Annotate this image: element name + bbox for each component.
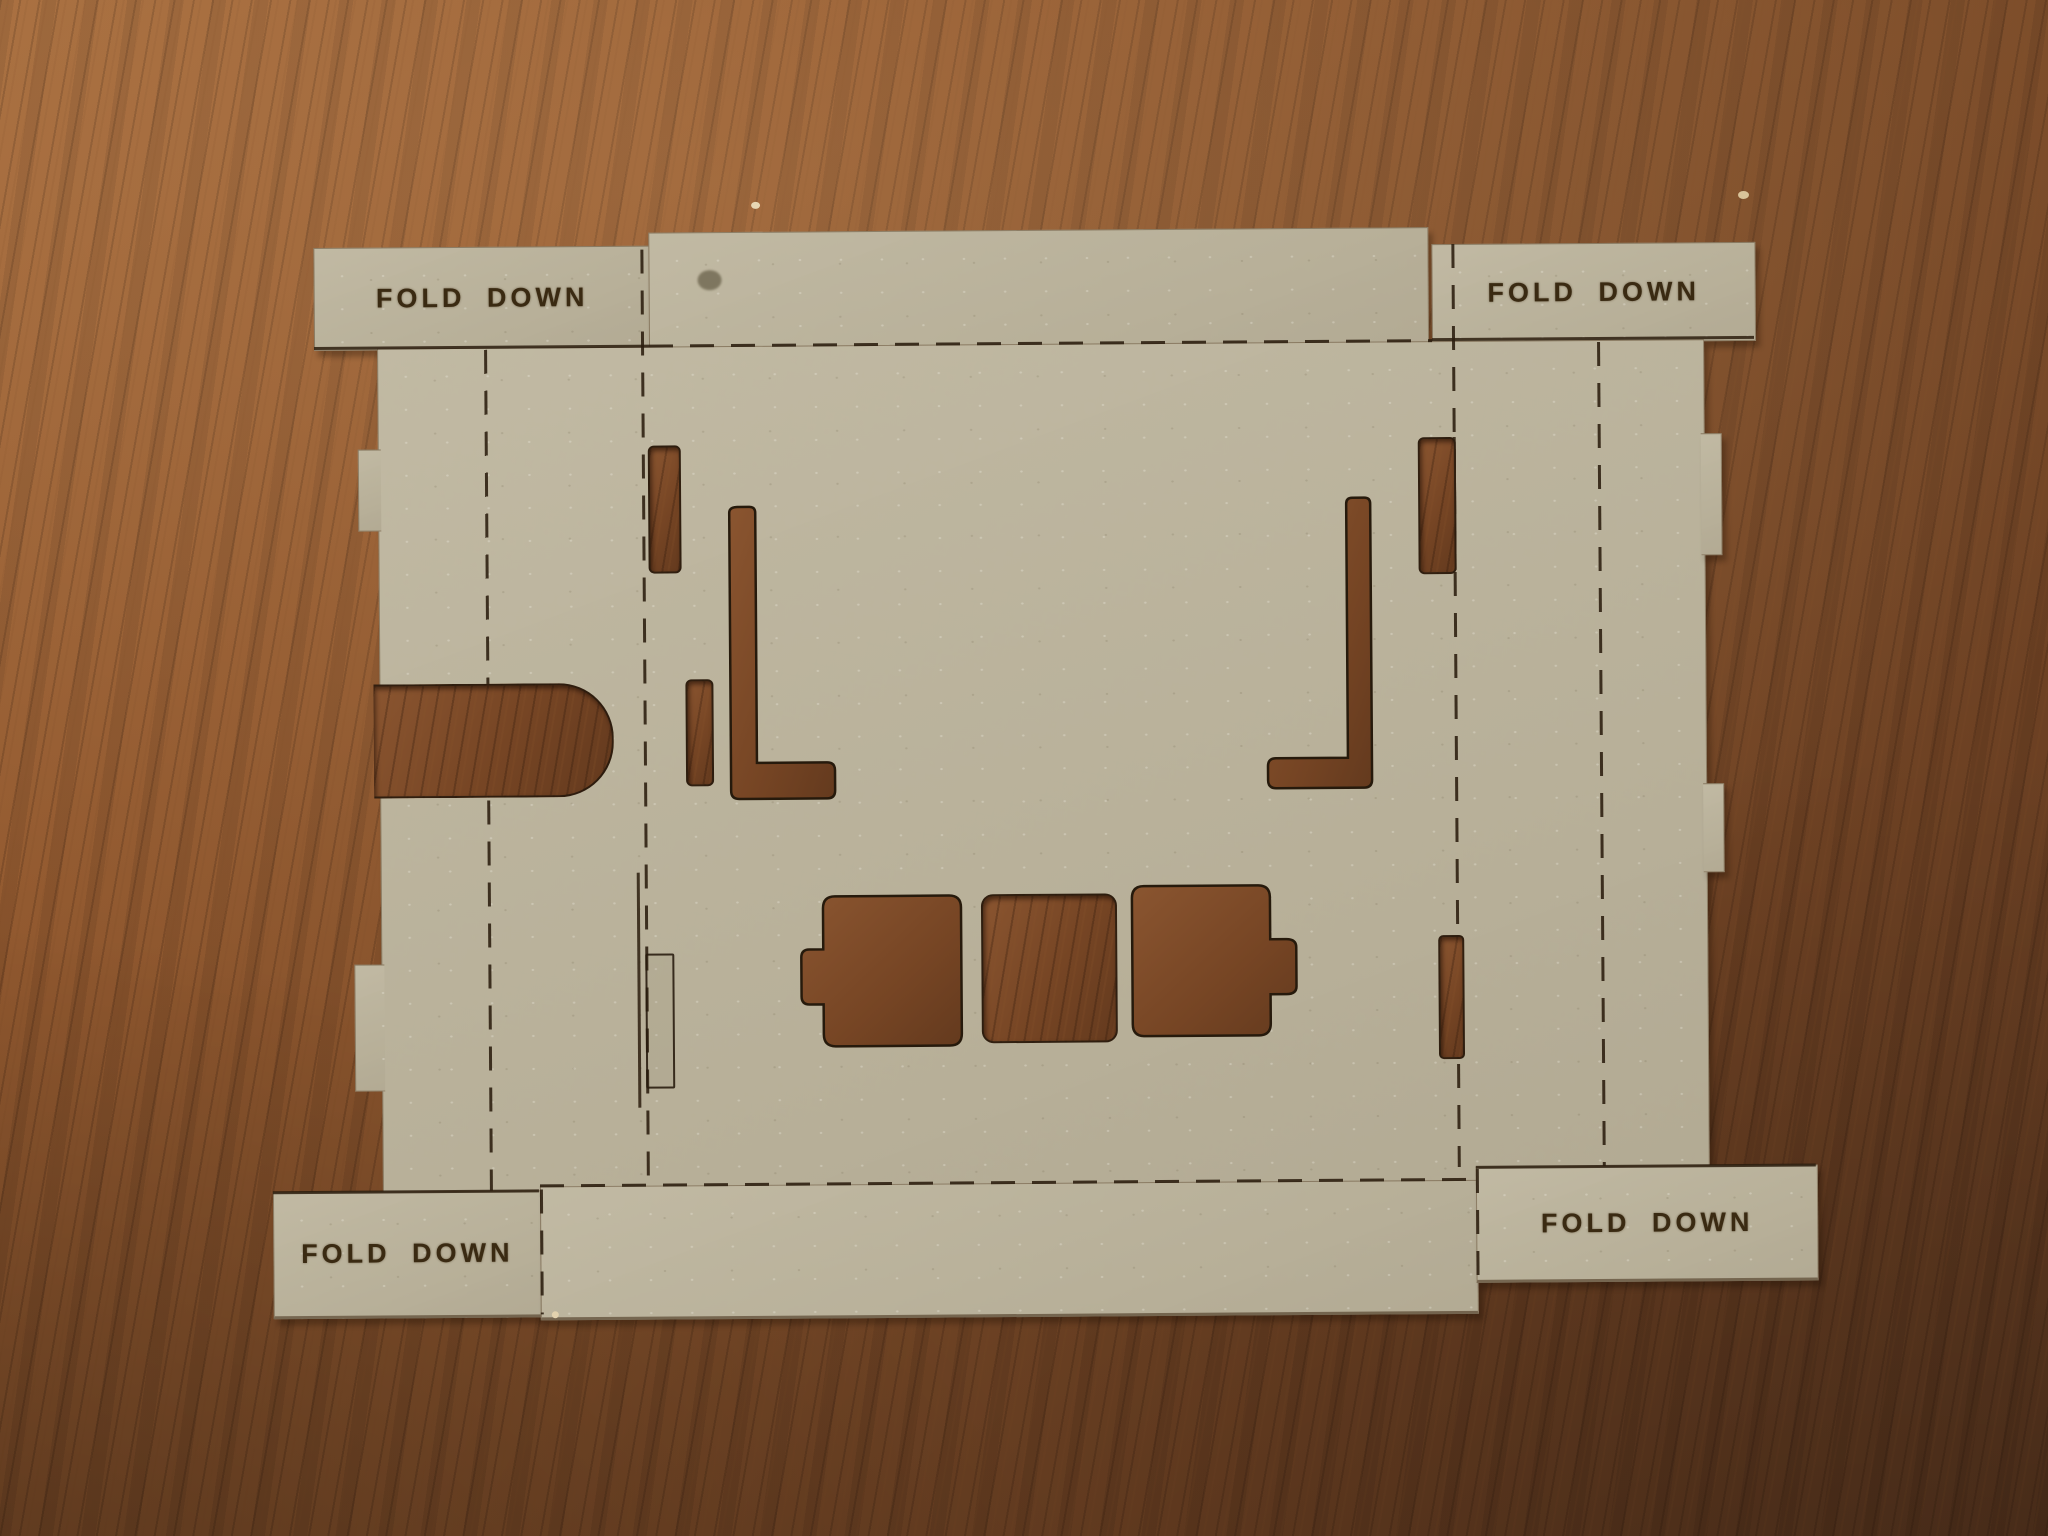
fold-flap-top-right: FOLD DOWN — [1431, 242, 1756, 343]
thumb-notch-cutout — [373, 683, 614, 799]
fold-flap-top-left: FOLD DOWN — [313, 246, 651, 351]
cardboard-stain — [698, 270, 722, 290]
tab-slot-outline-lower-left — [645, 953, 675, 1088]
bottom-panel-strip — [540, 1180, 1479, 1321]
debris-speck — [552, 1311, 559, 1318]
fold-flap-label: FOLD DOWN — [1477, 1165, 1818, 1279]
wood-table-surface: FOLD DOWN FOLD DOWN FOLD DOWN FOLD DOWN — [0, 0, 2048, 1536]
vent-slot-mid-left — [685, 679, 714, 786]
battery-cutout-left — [799, 893, 968, 1049]
vent-slot-upper-left — [648, 445, 682, 573]
fold-flap-bottom-left: FOLD DOWN — [273, 1190, 542, 1319]
edge-tab-right-lower — [1703, 783, 1725, 872]
edge-tab-right-upper — [1701, 433, 1723, 555]
l-bracket-cutout-right — [1262, 496, 1376, 793]
tab-slot-lower-right — [1438, 935, 1465, 1059]
fold-flap-bottom-right: FOLD DOWN — [1476, 1164, 1819, 1282]
battery-cutout-right — [1130, 883, 1301, 1039]
top-panel-strip — [648, 227, 1429, 348]
fold-flap-label: FOLD DOWN — [314, 247, 650, 350]
debris-speck — [1738, 191, 1749, 199]
edge-tab-left-upper — [358, 449, 382, 531]
l-bracket-cutout-left — [727, 504, 839, 803]
fold-flap-label: FOLD DOWN — [274, 1191, 541, 1316]
fold-flap-label: FOLD DOWN — [1432, 243, 1755, 342]
edge-tab-left-lower — [354, 964, 385, 1091]
vent-slot-upper-right — [1418, 437, 1457, 574]
debris-speck — [751, 202, 760, 209]
cardboard-template: FOLD DOWN FOLD DOWN FOLD DOWN FOLD DOWN — [0, 0, 2048, 1536]
square-cutout-middle — [981, 893, 1118, 1043]
